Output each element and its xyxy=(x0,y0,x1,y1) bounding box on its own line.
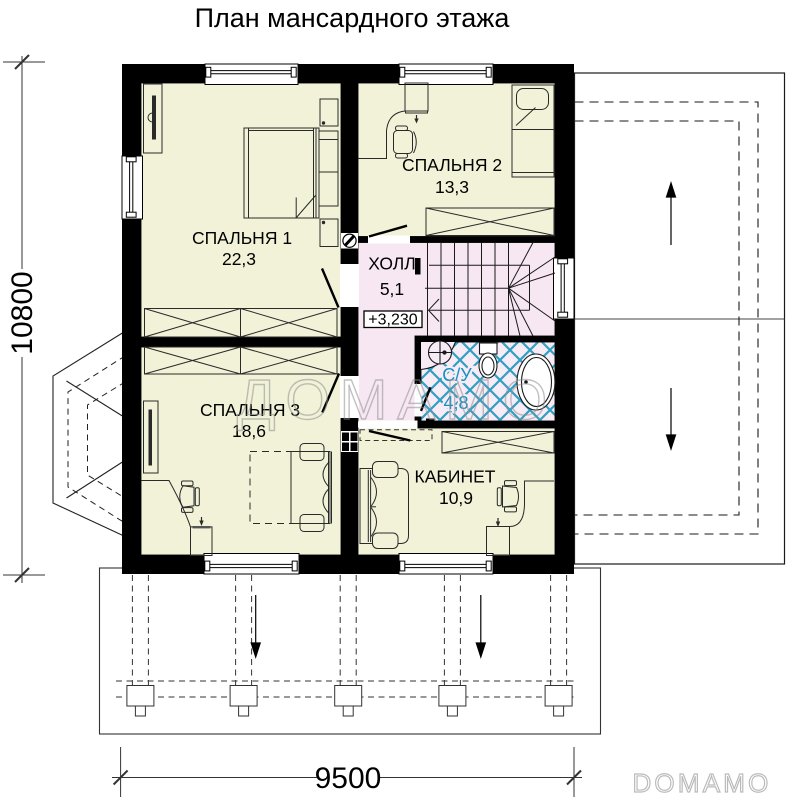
svg-text:План мансардного этажа: План мансардного этажа xyxy=(195,3,511,33)
svg-text:10800: 10800 xyxy=(6,271,39,354)
svg-text:DOMAMO: DOMAMO xyxy=(632,768,771,798)
svg-text:5,1: 5,1 xyxy=(380,279,404,299)
svg-text:10,9: 10,9 xyxy=(439,488,473,508)
svg-text:ХОЛЛ: ХОЛЛ xyxy=(368,254,415,274)
svg-text:КАБИНЕТ: КАБИНЕТ xyxy=(415,467,496,487)
svg-text:+3,230: +3,230 xyxy=(368,312,417,329)
svg-text:СПАЛЬНЯ 2: СПАЛЬНЯ 2 xyxy=(402,155,502,175)
svg-text:9500: 9500 xyxy=(315,762,382,795)
svg-text:13,3: 13,3 xyxy=(435,177,469,197)
svg-text:22,3: 22,3 xyxy=(222,249,256,269)
svg-text:СПАЛЬНЯ 1: СПАЛЬНЯ 1 xyxy=(192,228,292,248)
svg-text:ДОМАМО: ДОМАМО xyxy=(237,368,557,432)
